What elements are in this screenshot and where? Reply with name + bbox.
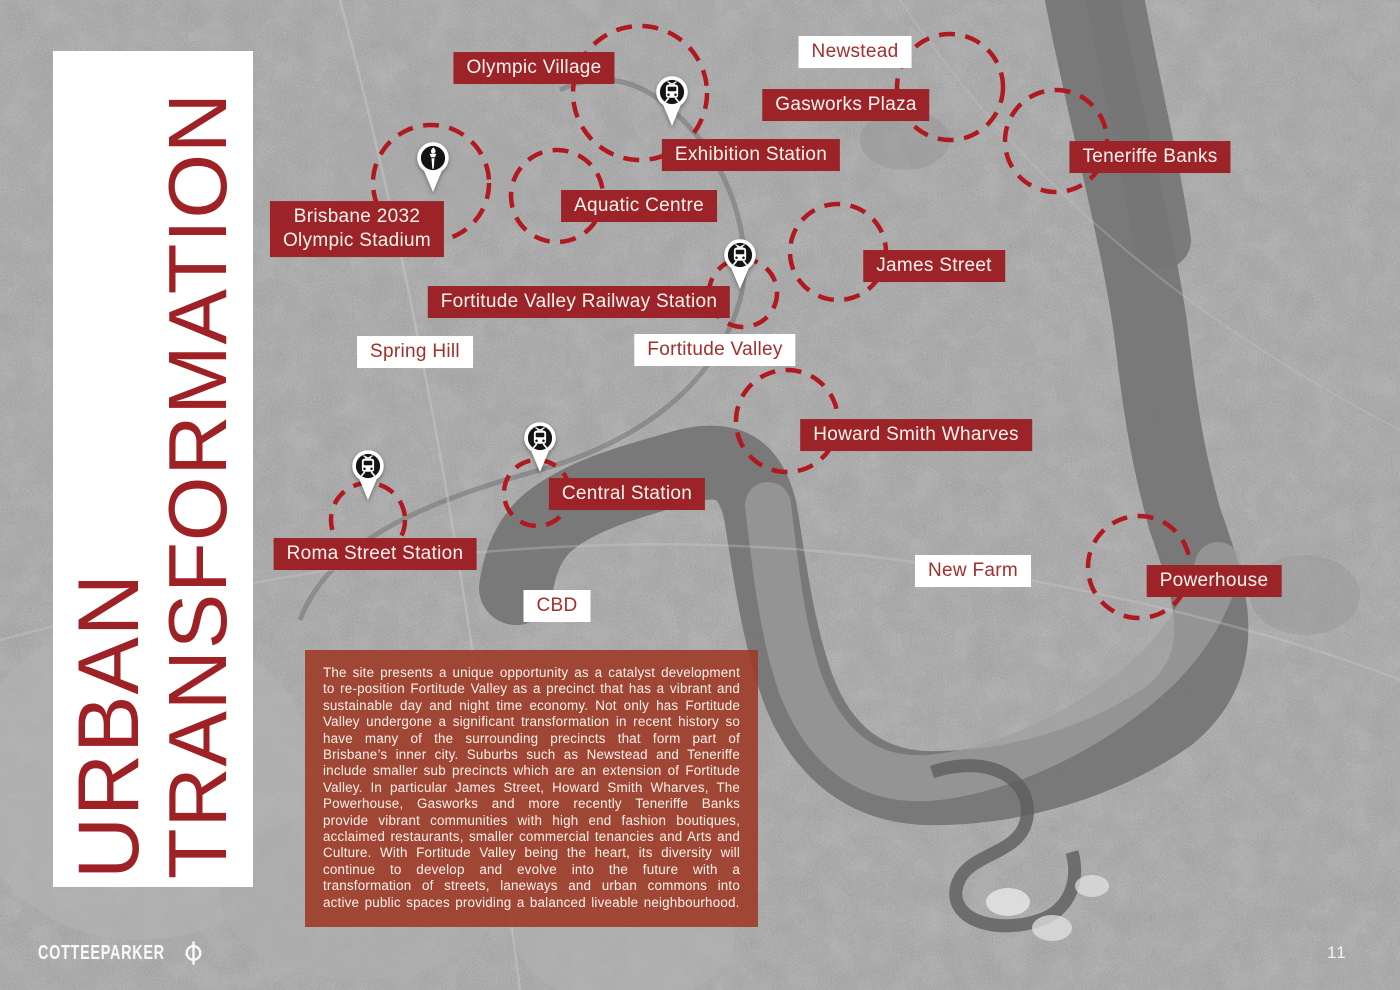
map-label-james-street: James Street <box>863 250 1005 282</box>
map-label-fortitude-valley: Fortitude Valley <box>634 334 795 366</box>
map-label-brisbane-2032-olympic-stadium: Brisbane 2032 Olympic Stadium <box>270 201 444 257</box>
map-label-roma-street-station: Roma Street Station <box>274 538 477 570</box>
brochure-page: Olympic VillageNewsteadGasworks PlazaExh… <box>0 0 1400 990</box>
brand-logo: COTTEEPARKER <box>38 941 203 965</box>
map-label-teneriffe-banks: Teneriffe Banks <box>1069 141 1230 173</box>
map-label-cbd: CBD <box>523 590 590 622</box>
map-label-gasworks-plaza: Gasworks Plaza <box>762 89 929 121</box>
map-label-fortitude-valley-railway-station: Fortitude Valley Railway Station <box>428 286 730 318</box>
page-title-transformation: TRANSFORMATION <box>153 92 243 879</box>
description-text: The site presents a unique opportunity a… <box>323 665 740 911</box>
phi-circle-icon <box>184 941 203 965</box>
map-label-olympic-village: Olympic Village <box>453 52 614 84</box>
map-label-new-farm: New Farm <box>915 555 1031 587</box>
map-label-newstead: Newstead <box>799 36 912 68</box>
map-label-howard-smith-wharves: Howard Smith Wharves <box>800 419 1032 451</box>
map-label-aquatic-centre: Aquatic Centre <box>561 190 717 222</box>
map-label-central-station: Central Station <box>549 478 705 510</box>
map-label-powerhouse: Powerhouse <box>1147 565 1282 597</box>
page-title-urban: URBAN <box>63 573 156 879</box>
title-panel: URBAN TRANSFORMATION <box>53 51 253 887</box>
map-label-exhibition-station: Exhibition Station <box>662 139 840 171</box>
description-box: The site presents a unique opportunity a… <box>305 650 758 927</box>
map-label-spring-hill: Spring Hill <box>357 336 473 368</box>
brand-logo-text: COTTEEPARKER <box>38 942 165 965</box>
page-number: 11 <box>1327 943 1347 963</box>
